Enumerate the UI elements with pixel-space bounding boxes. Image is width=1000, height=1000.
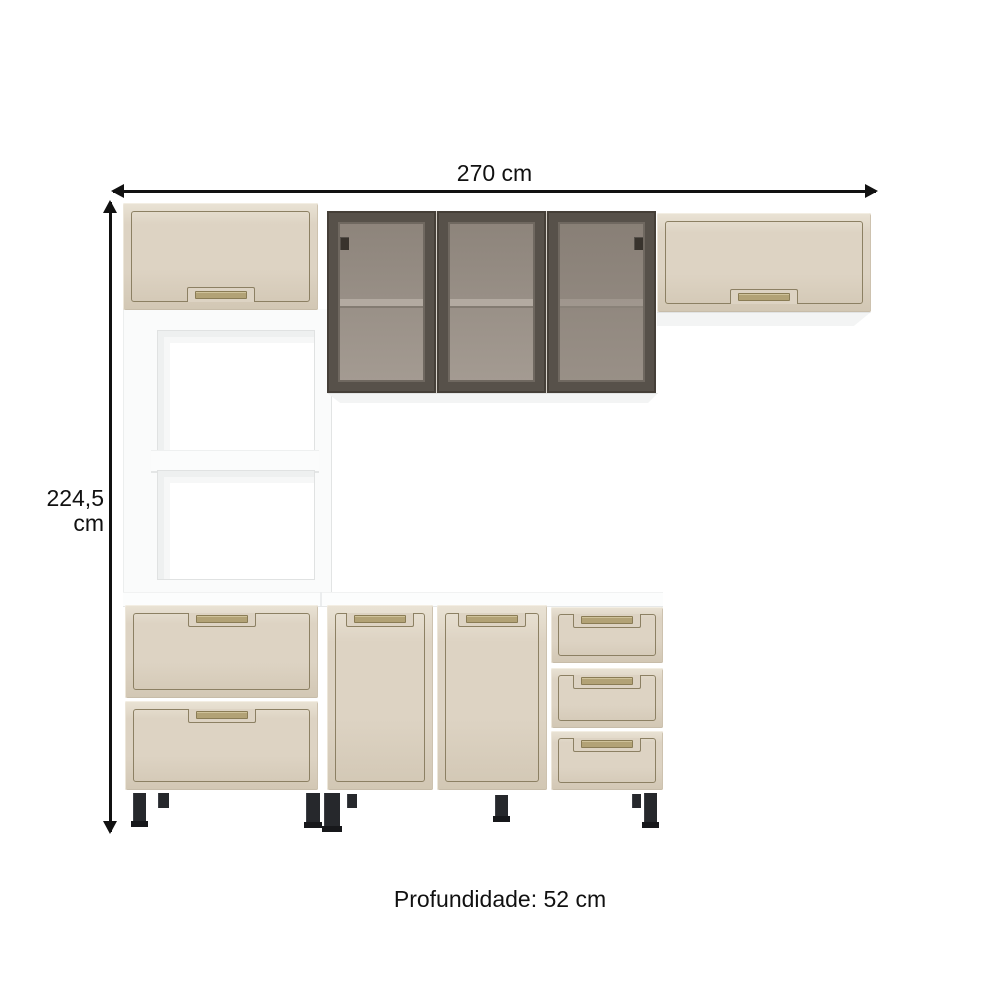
width-dimension-arrow <box>113 190 876 193</box>
inner-shelf <box>340 299 423 306</box>
small-drawer-3 <box>551 731 663 790</box>
cabinet-leg <box>347 794 357 808</box>
door-handle <box>466 615 518 623</box>
glass-cabinet-bottom-panel <box>327 393 658 403</box>
height-dimension-arrow <box>109 202 112 832</box>
base-door-2 <box>437 605 547 790</box>
small-drawer-1 <box>551 607 663 663</box>
drawer-handle <box>196 711 248 719</box>
handle-recess <box>187 287 255 302</box>
door-handle <box>738 293 790 301</box>
open-shelf-lower <box>157 470 315 580</box>
depth-dimension-label: Profundidade: 52 cm <box>0 887 1000 912</box>
inner-shelf <box>560 299 643 306</box>
door-handle <box>354 615 406 623</box>
tower-upper-door <box>123 203 318 310</box>
cabinet-leg <box>644 793 657 828</box>
wall-cabinet-door <box>657 213 871 312</box>
width-dimension-label: 270 cm <box>113 161 876 186</box>
cabinet-leg <box>632 794 641 808</box>
door-outline <box>335 613 425 782</box>
drawer-handle <box>581 740 633 748</box>
height-dimension-label: 224,5 cm <box>12 486 104 537</box>
glass-door-right <box>547 211 656 393</box>
glass-door-middle <box>437 211 546 393</box>
open-shelf-upper <box>157 330 315 452</box>
glass-wall-cabinet <box>327 211 656 393</box>
cabinet-seam <box>320 592 322 606</box>
handle-recess <box>188 709 256 723</box>
handle-recess <box>730 289 798 304</box>
glass-pane <box>558 222 645 382</box>
base-door-1 <box>327 605 433 790</box>
tower-drawer-1 <box>125 605 318 698</box>
drawer-handle <box>196 615 248 623</box>
tower-carcass <box>123 309 332 593</box>
handle-recess <box>573 738 641 752</box>
wall-cabinet-bottom-panel <box>657 312 871 326</box>
cabinet-leg <box>324 793 340 832</box>
door-outline <box>445 613 539 782</box>
handle-recess <box>188 613 256 627</box>
cabinet-leg <box>495 795 508 822</box>
cabinet-leg <box>158 793 169 808</box>
door-handle <box>195 291 247 299</box>
product-dimension-diagram: 270 cm 224,5 cm Profundidade: 52 cm <box>0 0 1000 1000</box>
handle-recess <box>458 613 526 627</box>
cabinet-leg <box>306 793 320 828</box>
door-knob <box>634 237 643 250</box>
glass-pane <box>338 222 425 382</box>
glass-door-left <box>327 211 436 393</box>
inner-shelf <box>450 299 533 306</box>
glass-pane <box>448 222 535 382</box>
handle-recess <box>573 675 641 689</box>
handle-recess <box>346 613 414 627</box>
drawer-handle <box>581 677 633 685</box>
cabinet-leg <box>133 793 146 827</box>
door-knob <box>340 237 349 250</box>
small-drawer-2 <box>551 668 663 728</box>
tower-drawer-2 <box>125 701 318 790</box>
drawer-handle <box>581 616 633 624</box>
handle-recess <box>573 614 641 628</box>
